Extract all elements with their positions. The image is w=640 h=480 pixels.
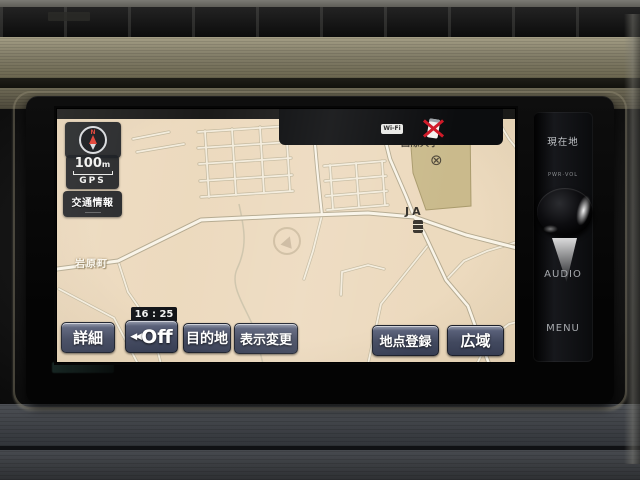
traffic-vics-placeholder [85,212,101,213]
model-badge [52,362,114,373]
wifi-badge: Wi-Fi [381,124,403,134]
scale-unit: m [102,160,110,169]
detail-zoom-button[interactable]: 詳細 [61,322,115,353]
compass-button[interactable]: N [65,122,121,158]
guidance-off-button[interactable]: ◀◀Off [125,320,178,353]
dash-top-trim [0,0,640,7]
lower-dash-trim-2 [0,450,640,480]
vehicle-position-cursor [273,227,301,255]
display-change-button[interactable]: 表示変更 [234,323,298,354]
hardware-button-panel: 現在地 PWR·VOL AUDIO MENU [533,112,593,362]
power-volume-knob[interactable] [537,188,593,236]
nav-touchscreen[interactable]: 国際大学 ⊗ JA 岩原町 Wi-Fi N [56,108,516,363]
lower-dash-trim [0,404,640,446]
dash-trim-groove [0,78,640,88]
traffic-info-label: 交通情報 [63,194,122,209]
scale-bracket [73,171,113,175]
status-bar: Wi-Fi [279,109,503,145]
dash-trim-band [0,37,640,78]
off-label: Off [141,326,173,348]
power-volume-label: PWR·VOL [533,172,593,178]
dashboard-photo: 国際大学 ⊗ JA 岩原町 Wi-Fi N [0,0,640,480]
console-edge-highlight [624,14,640,464]
knob-glare [573,194,593,227]
navigation-head-unit: 国際大学 ⊗ JA 岩原町 Wi-Fi N [26,96,614,404]
audio-button[interactable]: AUDIO [533,269,593,280]
map-scale-button[interactable]: 100m GPS [66,155,119,189]
scale-value: 100 [75,156,102,171]
ja-poi-label: JA [405,205,424,218]
town-label: 岩原町 [75,255,108,270]
gps-indicator: GPS [66,176,119,186]
register-point-button[interactable]: 地点登録 [372,325,439,356]
destination-button[interactable]: 目的地 [183,323,231,353]
ja-bank-icon [413,220,423,233]
wide-area-zoom-button[interactable]: 広域 [447,325,504,356]
defroster-vent [0,7,640,37]
compass-needle-north-icon [89,135,97,144]
menu-button[interactable]: MENU [533,323,593,334]
double-left-arrow-icon: ◀◀ [130,332,140,342]
current-location-button[interactable]: 現在地 [533,134,593,148]
knob-glare-2 [543,225,558,233]
vehicle-arrow-icon [280,234,295,248]
traffic-info-button[interactable]: 交通情報 [63,191,122,217]
vent-label [48,12,90,21]
police-station-symbol: ⊗ [430,151,443,169]
compass-dial: N [79,126,107,154]
phone-disconnected-icon [423,116,443,141]
compass-needle-south-icon [90,144,96,150]
